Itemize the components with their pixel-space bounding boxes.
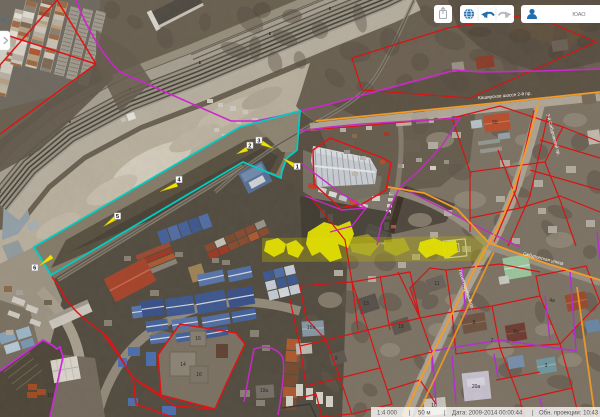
- svg-text:55: 55: [492, 120, 498, 126]
- svg-text:1:4 000: 1:4 000: [377, 411, 398, 417]
- svg-text:9: 9: [335, 356, 338, 362]
- svg-text:15: 15: [398, 324, 404, 330]
- svg-text:4а: 4а: [549, 298, 555, 304]
- svg-text:13: 13: [363, 301, 369, 307]
- svg-text:11: 11: [434, 281, 439, 287]
- svg-text:2: 2: [248, 143, 251, 149]
- svg-text:15а: 15а: [307, 325, 316, 331]
- svg-text:19а: 19а: [260, 388, 269, 394]
- svg-text:16: 16: [195, 336, 201, 342]
- svg-text:16: 16: [196, 372, 202, 378]
- svg-text:ЮАО: ЮАО: [572, 12, 586, 18]
- svg-text:8: 8: [473, 320, 476, 326]
- svg-text:10: 10: [47, 393, 53, 399]
- svg-text:Обн. проекции: 10:43: Обн. проекции: 10:43: [539, 411, 599, 417]
- svg-text:14: 14: [180, 362, 186, 368]
- svg-text:7: 7: [491, 338, 494, 344]
- svg-text:Дата: 2009-2014 00:00:44: Дата: 2009-2014 00:00:44: [452, 411, 523, 417]
- svg-text:20а: 20а: [472, 384, 481, 390]
- svg-text:М..: М..: [1, 18, 8, 24]
- svg-text:8а: 8а: [513, 329, 519, 335]
- svg-text:50 м: 50 м: [418, 411, 430, 417]
- svg-text:3: 3: [545, 363, 548, 369]
